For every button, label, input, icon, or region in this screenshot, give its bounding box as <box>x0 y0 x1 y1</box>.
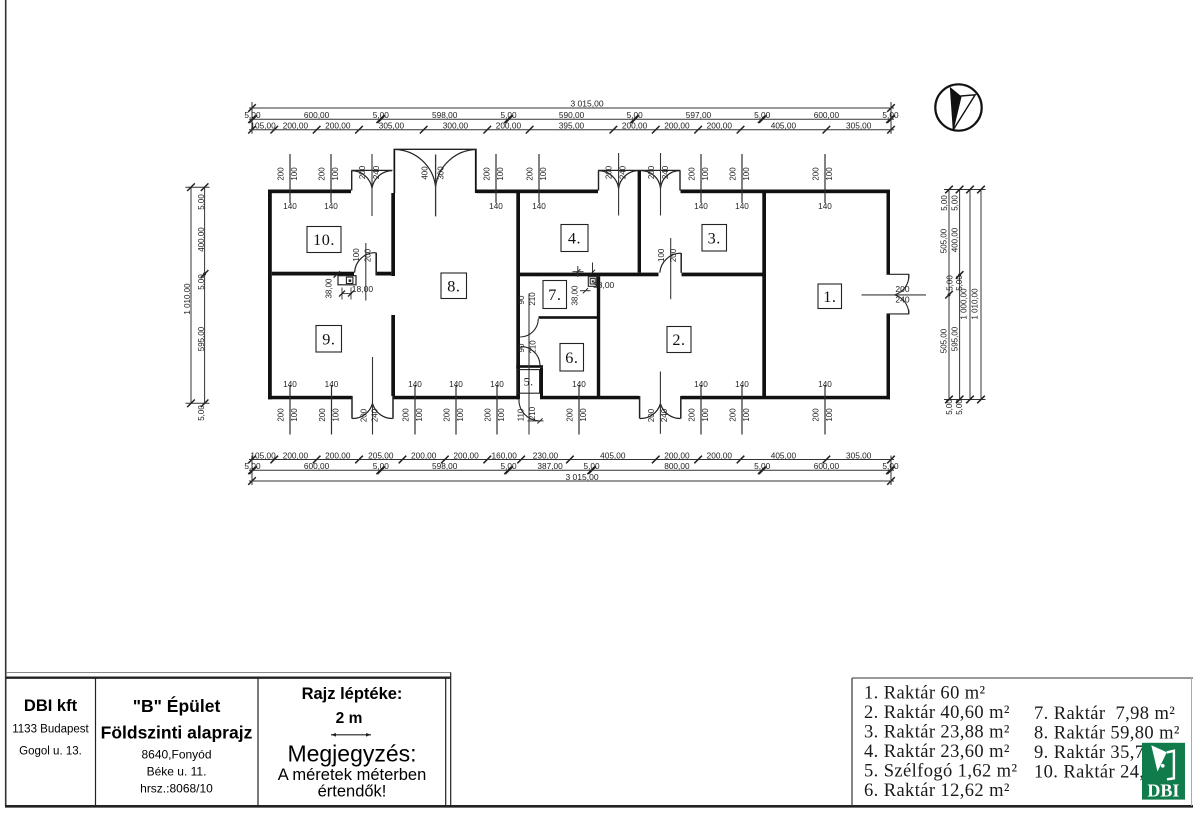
svg-text:5,00: 5,00 <box>945 399 954 415</box>
svg-text:405,00: 405,00 <box>771 121 797 131</box>
svg-text:240: 240 <box>372 165 381 179</box>
svg-text:598,00: 598,00 <box>432 110 458 120</box>
svg-text:5,00: 5,00 <box>244 110 261 120</box>
svg-text:400: 400 <box>421 166 430 180</box>
svg-text:5,00: 5,00 <box>940 195 949 211</box>
svg-text:2. Raktár 40,60 m²: 2. Raktár 40,60 m² <box>864 703 1010 723</box>
svg-text:200,00: 200,00 <box>325 450 351 460</box>
svg-text:200,00: 200,00 <box>453 450 479 460</box>
svg-text:2 m: 2 m <box>336 710 363 727</box>
svg-text:305,00: 305,00 <box>846 121 872 131</box>
svg-text:5,00: 5,00 <box>373 461 390 471</box>
svg-text:5,00: 5,00 <box>197 194 206 210</box>
svg-text:3.: 3. <box>708 229 721 247</box>
svg-text:Gogol u. 13.: Gogol u. 13. <box>19 746 82 758</box>
svg-text:405,00: 405,00 <box>771 450 797 460</box>
svg-text:300: 300 <box>437 166 446 180</box>
svg-text:2.: 2. <box>672 331 685 349</box>
svg-text:100: 100 <box>352 248 361 262</box>
svg-text:1 010,00: 1 010,00 <box>971 288 980 320</box>
svg-text:9.: 9. <box>322 330 335 348</box>
svg-text:5,00: 5,00 <box>373 110 390 120</box>
svg-text:Megjegyzés:: Megjegyzés: <box>287 741 416 767</box>
svg-text:240: 240 <box>661 165 670 179</box>
svg-text:1. Raktár 60 m²: 1. Raktár 60 m² <box>864 684 986 704</box>
svg-text:200,00: 200,00 <box>496 121 522 131</box>
svg-text:Béke u. 11.: Béke u. 11. <box>147 765 207 779</box>
svg-text:DBI kft: DBI kft <box>24 697 78 715</box>
svg-text:200,00: 200,00 <box>283 450 309 460</box>
svg-text:405,00: 405,00 <box>600 450 626 460</box>
svg-text:597,00: 597,00 <box>686 110 712 120</box>
svg-text:1 000,00: 1 000,00 <box>960 288 969 320</box>
svg-text:6. Raktár 12,62 m²: 6. Raktár 12,62 m² <box>864 781 1010 801</box>
svg-text:200: 200 <box>358 165 367 179</box>
svg-text:7. Raktár 7,98 m²: 7. Raktár 7,98 m² <box>1034 704 1175 724</box>
svg-text:90: 90 <box>517 295 526 304</box>
svg-text:105,00: 105,00 <box>250 121 276 131</box>
svg-text:240: 240 <box>660 408 669 422</box>
svg-text:240: 240 <box>370 408 379 422</box>
svg-text:598,00: 598,00 <box>432 461 458 471</box>
svg-text:200,00: 200,00 <box>707 450 733 460</box>
svg-text:200: 200 <box>364 248 373 262</box>
svg-text:240: 240 <box>895 295 909 305</box>
svg-text:595,00: 595,00 <box>951 326 960 351</box>
svg-text:210: 210 <box>528 292 537 306</box>
svg-text:5,00: 5,00 <box>197 274 206 290</box>
svg-text:5,00: 5,00 <box>501 110 518 120</box>
svg-text:200: 200 <box>359 408 368 422</box>
svg-text:505,00: 505,00 <box>940 228 949 253</box>
svg-text:5,00: 5,00 <box>955 399 964 415</box>
svg-text:205,00: 205,00 <box>368 450 394 460</box>
svg-text:8. Raktár 59,80 m²: 8. Raktár 59,80 m² <box>1034 724 1180 744</box>
svg-text:5,00: 5,00 <box>627 110 644 120</box>
svg-text:5,00: 5,00 <box>754 461 771 471</box>
svg-text:200,00: 200,00 <box>325 121 351 131</box>
svg-text:200: 200 <box>647 165 656 179</box>
svg-text:1.: 1. <box>823 288 836 306</box>
svg-text:"B" Épület: "B" Épület <box>133 695 221 716</box>
svg-text:240: 240 <box>619 165 628 179</box>
svg-text:értendők!: értendők! <box>318 783 387 801</box>
svg-text:200: 200 <box>605 165 614 179</box>
svg-text:200,00: 200,00 <box>283 121 309 131</box>
svg-text:595,00: 595,00 <box>197 326 206 351</box>
svg-text:4. Raktár 23,60 m²: 4. Raktár 23,60 m² <box>864 742 1010 762</box>
svg-text:395,00: 395,00 <box>559 121 585 131</box>
svg-text:A méretek méterben: A méretek méterben <box>278 766 427 784</box>
svg-text:590,00: 590,00 <box>559 110 585 120</box>
svg-text:8.: 8. <box>447 277 460 295</box>
svg-text:305,00: 305,00 <box>846 450 872 460</box>
svg-text:5,00: 5,00 <box>584 461 601 471</box>
svg-text:1133 Budapest: 1133 Budapest <box>12 724 89 736</box>
svg-text:600,00: 600,00 <box>304 110 330 120</box>
svg-text:505,00: 505,00 <box>940 328 949 353</box>
svg-text:400,00: 400,00 <box>951 227 960 252</box>
svg-text:hrsz.:8068/10: hrsz.:8068/10 <box>140 782 213 796</box>
svg-text:230,00: 230,00 <box>533 450 559 460</box>
svg-text:DBI: DBI <box>1147 781 1179 801</box>
svg-text:5,00: 5,00 <box>955 275 964 291</box>
svg-text:90: 90 <box>517 343 526 352</box>
svg-text:7.: 7. <box>548 286 561 304</box>
svg-text:5,00: 5,00 <box>197 405 206 421</box>
svg-text:Rajz léptéke:: Rajz léptéke: <box>302 685 403 703</box>
svg-text:5.: 5. <box>524 375 534 389</box>
svg-text:5,00: 5,00 <box>244 461 261 471</box>
svg-text:18,00: 18,00 <box>352 284 374 294</box>
svg-text:Földszinti alaprajz: Földszinti alaprajz <box>101 723 253 743</box>
svg-text:387,00: 387,00 <box>537 461 563 471</box>
svg-text:38,00: 38,00 <box>570 285 579 306</box>
svg-text:105,00: 105,00 <box>250 450 276 460</box>
svg-text:110: 110 <box>517 408 526 421</box>
svg-text:8640,Fonyód: 8640,Fonyód <box>141 748 211 762</box>
svg-text:600,00: 600,00 <box>814 461 840 471</box>
svg-text:200: 200 <box>669 248 678 262</box>
svg-text:38,00: 38,00 <box>325 278 334 299</box>
svg-text:38,00: 38,00 <box>593 280 615 290</box>
svg-text:200,00: 200,00 <box>622 121 648 131</box>
svg-text:160,00: 160,00 <box>492 450 518 460</box>
svg-text:4.: 4. <box>568 230 581 248</box>
svg-text:5,00: 5,00 <box>946 275 955 291</box>
svg-text:200,00: 200,00 <box>411 450 437 460</box>
svg-text:200: 200 <box>895 284 909 294</box>
svg-text:3. Raktár 23,88 m²: 3. Raktár 23,88 m² <box>864 723 1010 743</box>
svg-text:1 010,00: 1 010,00 <box>183 283 192 315</box>
svg-text:5,00: 5,00 <box>501 461 518 471</box>
svg-text:100: 100 <box>657 248 666 262</box>
svg-text:210: 210 <box>528 340 537 354</box>
svg-text:300,00: 300,00 <box>443 121 469 131</box>
svg-text:200,00: 200,00 <box>707 121 733 131</box>
svg-text:305,00: 305,00 <box>379 121 405 131</box>
svg-text:3 015,00: 3 015,00 <box>570 99 603 109</box>
svg-text:200,00: 200,00 <box>664 450 690 460</box>
svg-text:400,00: 400,00 <box>197 227 206 252</box>
svg-text:5,00: 5,00 <box>951 195 960 211</box>
svg-text:210: 210 <box>528 406 537 420</box>
svg-text:5. Szélfogó 1,62 m²: 5. Szélfogó 1,62 m² <box>864 762 1017 782</box>
svg-text:3 015,00: 3 015,00 <box>565 472 598 482</box>
svg-text:800,00: 800,00 <box>664 461 690 471</box>
svg-text:6.: 6. <box>565 349 578 367</box>
svg-text:10.: 10. <box>313 231 335 249</box>
svg-text:600,00: 600,00 <box>304 461 330 471</box>
svg-text:600,00: 600,00 <box>814 110 840 120</box>
svg-text:200,00: 200,00 <box>664 121 690 131</box>
svg-text:5,00: 5,00 <box>754 110 771 120</box>
svg-text:200: 200 <box>647 408 656 422</box>
